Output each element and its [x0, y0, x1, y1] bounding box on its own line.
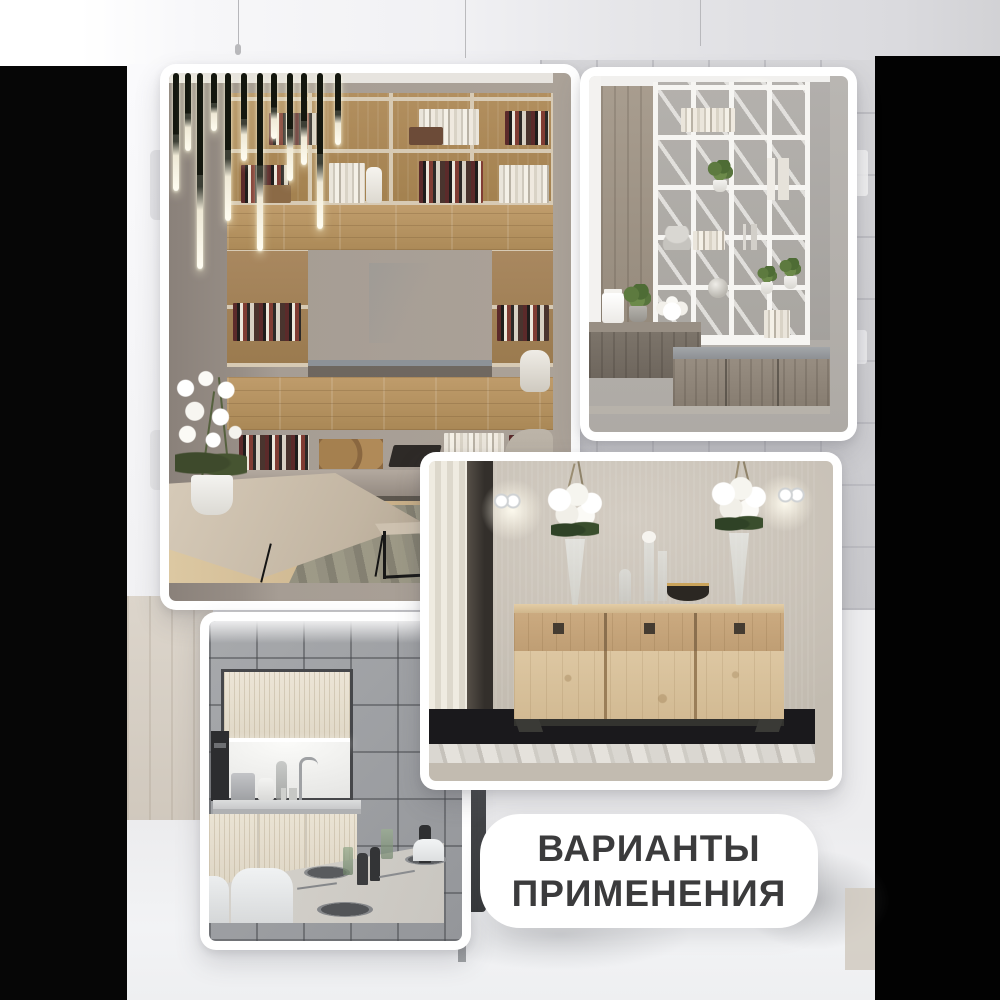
wood-cylinder-boxes: [319, 439, 383, 469]
sconce-glow: [469, 467, 555, 553]
books-row: [499, 165, 549, 203]
plant-pot: [629, 306, 647, 322]
pendant-light: [197, 73, 203, 269]
pendant-light: [271, 73, 277, 139]
caption-line-2: ПРИМЕНЕНИЯ: [480, 871, 818, 916]
books-row: [764, 310, 790, 338]
wine-glass: [619, 569, 631, 601]
countertop: [213, 800, 361, 809]
backdrop-black-bar-left: [0, 66, 127, 1000]
photo-sideboard-scene: [429, 461, 833, 781]
wall-sconce: [493, 493, 521, 509]
plant-pot: [713, 180, 727, 192]
backdrop-top-strip: [0, 0, 1000, 66]
coffee-machine: [231, 773, 255, 800]
caption-line-1: ВАРИАНТЫ: [480, 826, 818, 871]
shelf-plant: [779, 258, 801, 278]
plant-pot: [761, 282, 773, 294]
candles: [767, 158, 789, 200]
sideboard-leg: [755, 719, 783, 732]
faucet: [299, 757, 318, 802]
sideboard-main-top: [673, 347, 830, 359]
wood-box: [409, 127, 443, 145]
photo-white-shelving-divider: [580, 67, 857, 441]
plant-pot: [784, 276, 797, 289]
sideboard-doors: [514, 651, 784, 719]
drawer-knob: [734, 623, 745, 634]
books-row: [419, 161, 483, 203]
kettle: [258, 778, 274, 800]
white-chair: [231, 868, 293, 923]
wood-panel-band: [227, 377, 553, 430]
photo-oak-sideboard: [420, 452, 842, 790]
small-glasses: [281, 788, 297, 800]
sideboard-base: [514, 719, 784, 726]
pendant-light: [335, 73, 341, 145]
stone-vase: [520, 350, 550, 392]
lotus-decor: [655, 292, 689, 322]
drawer-gap: [694, 613, 697, 651]
drawer-knob: [644, 623, 655, 634]
glass-candlestick: [644, 539, 654, 601]
upper-cabinets: [224, 672, 350, 738]
sideboard-main-front: [673, 359, 830, 406]
bottles: [693, 231, 725, 250]
pendant-light: [317, 73, 323, 229]
sideboard-left-top: [589, 322, 701, 332]
oven-column: [211, 731, 229, 801]
backdrop-cord: [700, 0, 701, 46]
green-glass: [343, 847, 353, 875]
plate: [317, 902, 373, 917]
orchid-pot: [191, 475, 233, 515]
bouquet-leaves: [715, 513, 763, 535]
books-row: [329, 163, 365, 203]
marble-rug: [429, 744, 815, 763]
books-row: [233, 303, 301, 341]
oven-display: [214, 743, 226, 748]
backdrop-beige-wedge: [845, 888, 875, 970]
wood-panel-band: [227, 205, 553, 250]
pendant-light: [287, 73, 293, 181]
silver-ball-vase: [708, 278, 728, 298]
sideboard-seam: [725, 359, 727, 406]
pepper-grinder: [357, 853, 368, 885]
pendant-light: [225, 73, 231, 221]
side-table-leg: [383, 531, 386, 579]
candlesticks: [743, 224, 757, 250]
poster-collage: ВАРИАНТЫ ПРИМЕНЕНИЯ: [0, 0, 1000, 1000]
pendant-light: [257, 73, 263, 251]
backdrop-bulb: [235, 44, 241, 55]
candle-ball: [642, 531, 656, 543]
grey-wall-right: [810, 82, 830, 340]
pendant-light: [185, 73, 191, 151]
pendant-light: [173, 73, 179, 191]
photo-divider-scene: [589, 76, 848, 432]
door-gap: [694, 651, 697, 719]
wall-sconce: [777, 487, 805, 503]
shelf-plant: [707, 160, 733, 182]
books-row: [681, 108, 735, 132]
books-row: [505, 111, 549, 145]
green-glass: [381, 829, 393, 859]
pendant-light: [211, 73, 217, 131]
caption-card: ВАРИАНТЫ ПРИМЕНЕНИЯ: [480, 814, 818, 928]
backdrop-black-bar-right: [875, 56, 1000, 1000]
backdrop-cord: [465, 0, 466, 58]
pendant-light: [301, 73, 307, 165]
drawer-knob: [553, 623, 564, 634]
books-row: [497, 305, 549, 341]
door-gap: [604, 651, 607, 719]
pendant-light: [241, 73, 247, 161]
lantern: [602, 293, 624, 323]
silver-dishes: [657, 226, 697, 250]
gold-bowl: [667, 583, 709, 601]
sideboard-leg: [515, 719, 543, 732]
drawer-gap: [604, 613, 607, 651]
sideboard-seam: [777, 359, 779, 406]
white-chair: [209, 876, 229, 923]
floor: [589, 406, 830, 414]
tv-shadow: [308, 366, 492, 377]
sideboard-top-slab: [514, 604, 784, 613]
bouquet-leaves: [551, 519, 599, 541]
white-chair: [413, 839, 444, 861]
white-vase: [366, 167, 382, 203]
glass-candlestick: [658, 551, 667, 601]
ceiling-cove: [209, 621, 444, 643]
tv-reflection: [369, 263, 429, 343]
